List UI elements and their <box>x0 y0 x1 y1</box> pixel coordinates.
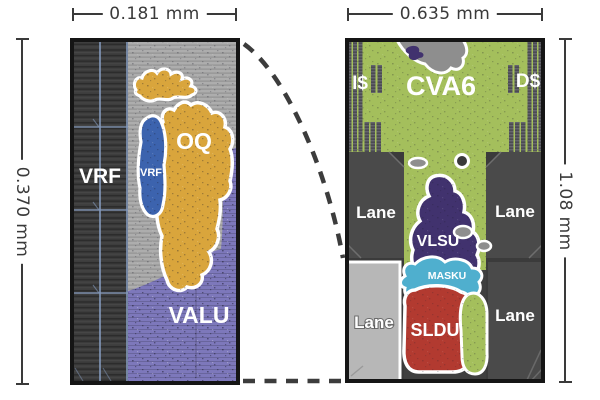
lane-bottom-right-label: Lane <box>495 306 535 325</box>
lane-top-left-label: Lane <box>356 203 396 222</box>
left-die-micrograph: VRF VRF OQ VALU <box>70 38 240 385</box>
lane-top-right-label: Lane <box>495 202 535 221</box>
oq-label: OQ <box>176 128 212 154</box>
sldu-label: SLDU <box>411 320 460 340</box>
dimension-tick <box>541 8 543 21</box>
left-die-width-label: 0.181 mm <box>102 4 206 24</box>
dimension-tick <box>347 8 349 21</box>
vrf-label: VRF <box>79 165 121 188</box>
valu-label: VALU <box>169 302 230 328</box>
right-die-height-dimension: 1.08 mm <box>557 38 573 383</box>
dimension-tick <box>16 383 29 385</box>
right-die-width-label: 0.635 mm <box>393 4 497 24</box>
lane-bottom-left-label: Lane <box>354 313 394 332</box>
cva6-label: CVA6 <box>406 71 476 101</box>
left-die-height-dimension: 0.370 mm <box>14 38 30 385</box>
left-die-width-dimension: 0.181 mm <box>72 6 237 22</box>
left-die-height-label: 0.370 mm <box>12 159 32 263</box>
die-shot-figure: 0.181 mm 0.635 mm 0.370 mm 1.08 mm <box>0 0 600 400</box>
slug-speckle <box>460 293 487 374</box>
vrf-small-label: VRF <box>140 167 162 179</box>
right-die-micrograph: I$ CVA6 D$ Lane Lane Lane Lane VLSU MASK… <box>345 38 545 383</box>
dimension-tick <box>72 8 74 21</box>
dcache-label: D$ <box>516 71 541 92</box>
dimension-tick <box>559 381 572 383</box>
masku-label: MASKU <box>428 270 467 282</box>
dimension-tick <box>235 8 237 21</box>
right-die-width-dimension: 0.635 mm <box>347 6 543 22</box>
right-die-height-label: 1.08 mm <box>555 164 575 257</box>
zoom-connector-top-curve <box>244 44 343 258</box>
icache-label: I$ <box>352 73 368 94</box>
outlined-hole <box>456 155 469 168</box>
vlsu-label: VLSU <box>417 233 460 250</box>
dimension-tick <box>559 38 572 40</box>
dimension-tick <box>16 38 29 40</box>
